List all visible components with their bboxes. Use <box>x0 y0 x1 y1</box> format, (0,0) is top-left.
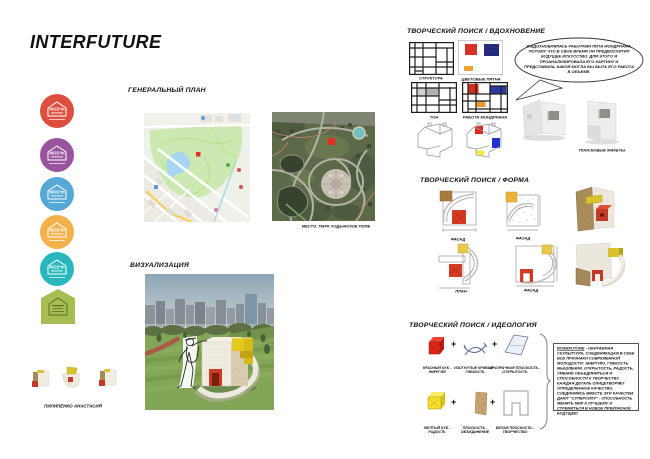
map-marker-icon <box>196 152 201 157</box>
yellow-cube-icon <box>427 390 447 412</box>
mondrian-grid-tone <box>411 82 457 113</box>
svg-text:MOD'in: MOD'in <box>49 190 65 195</box>
author-mockup-thumb-3 <box>96 368 118 388</box>
statement-body: - ОБИТАЕМАЯ СКУЛЬПТУРА, СОЕДИНЯЮЩАЯ В СЕ… <box>557 346 634 415</box>
form-mockup-photo-2 <box>570 242 627 289</box>
form-drawing-facade-1 <box>432 188 479 236</box>
house-logo-icon <box>46 296 70 318</box>
axon-sketch-outline <box>413 122 455 159</box>
house-logo-icon: MOD'in <box>45 143 69 167</box>
svg-text:MOD'in: MOD'in <box>49 107 65 112</box>
satellite-map <box>272 112 375 221</box>
form-mockup-photo-1 <box>572 185 617 232</box>
ideology-title: ТВОРЧЕСКИЙ ПОИСК / ИДЕОЛОГИЯ <box>409 322 537 329</box>
modin-badge-green-house <box>41 289 75 324</box>
house-logo-icon: MOD'in <box>45 182 69 206</box>
plus-icon: + <box>451 339 456 349</box>
cardboard-plane-icon <box>474 390 489 417</box>
transparent-plane-icon <box>502 333 530 357</box>
ideology-statement: INTERFUTURE - ОБИТАЕМАЯ СКУЛЬПТУРА, СОЕД… <box>557 346 635 416</box>
modin-badge-orange: MOD'in <box>40 215 74 249</box>
mondrian-grid-color-patches <box>458 40 503 75</box>
map-marker-icon <box>328 138 335 145</box>
grid-label-artwork: РАБОТА МОНДРИАНА <box>440 115 530 120</box>
plus-icon: + <box>492 339 497 349</box>
plus-icon: + <box>490 397 495 407</box>
drawing-label-2: ФАСАД <box>478 236 568 241</box>
speech-bubble-text: Я ВДОХНОВЛЯЛАСЬ РАБОТАМИ ПИТА МОНДРИАНА,… <box>524 44 634 75</box>
visualization-title: ВИЗУАЛИЗАЦИЯ <box>130 262 189 269</box>
house-logo-icon: MOD'in <box>45 257 69 281</box>
statement-title: INTERFUTURE <box>557 346 585 351</box>
presentation-board: INTERFUTURE MOD'in MOD'in MOD'in MOD'in <box>0 0 650 459</box>
drawing-label-4: ФАСАД <box>486 288 576 293</box>
inspiration-title: ТВОРЧЕСКИЙ ПОИСК / ВДОХНОВЕНИЕ <box>407 28 545 35</box>
author-mockup-thumb-2 <box>59 365 82 390</box>
street-map <box>144 113 250 222</box>
modin-badge-teal: MOD'in <box>40 252 74 286</box>
genplan-title: ГЕНЕРАЛЬНЫЙ ПЛАН <box>128 87 206 94</box>
page-title: INTERFUTURE <box>30 32 161 53</box>
mondrian-grid-artwork <box>462 82 508 113</box>
house-logo-icon: MOD'in <box>45 99 69 123</box>
plus-icon: + <box>451 397 456 407</box>
mondrian-grid-structure <box>409 42 454 75</box>
red-cube-icon <box>428 335 445 357</box>
form-drawing-facade-2 <box>500 189 545 234</box>
author-mockup-thumb-1 <box>28 368 51 390</box>
axon-sketch-colored <box>462 122 504 159</box>
modin-badge-red: MOD'in <box>40 94 74 128</box>
modin-badge-blue: MOD'in <box>40 177 74 211</box>
mockup-photo-2 <box>580 98 623 145</box>
form-drawing-facade-3 <box>503 244 558 287</box>
form-title: ТВОРЧЕСКИЙ ПОИСК / ФОРМА <box>420 177 529 184</box>
mockups-label: ПОИСКОВЫЕ МАКЕТЫ <box>557 148 647 153</box>
svg-text:MOD'in: MOD'in <box>49 265 65 270</box>
author-name: ПИЛИПЕНКО АНАСТАСИЯ <box>28 404 118 409</box>
genplan-caption: МЕСТО: ПАРК ХОДЫНСКОЕ ПОЛЕ <box>291 224 381 229</box>
brace-icon <box>538 333 554 430</box>
svg-text:MOD'in: MOD'in <box>49 151 65 156</box>
white-plane-icon <box>501 388 531 417</box>
modin-badge-purple: MOD'in <box>40 138 74 172</box>
house-logo-icon: MOD'in <box>45 220 69 244</box>
form-drawing-plan <box>438 243 483 289</box>
curves-icon <box>463 340 487 358</box>
svg-text:MOD'in: MOD'in <box>49 228 65 233</box>
mockup-photo-1 <box>520 97 567 142</box>
visualization-photo <box>145 274 274 410</box>
